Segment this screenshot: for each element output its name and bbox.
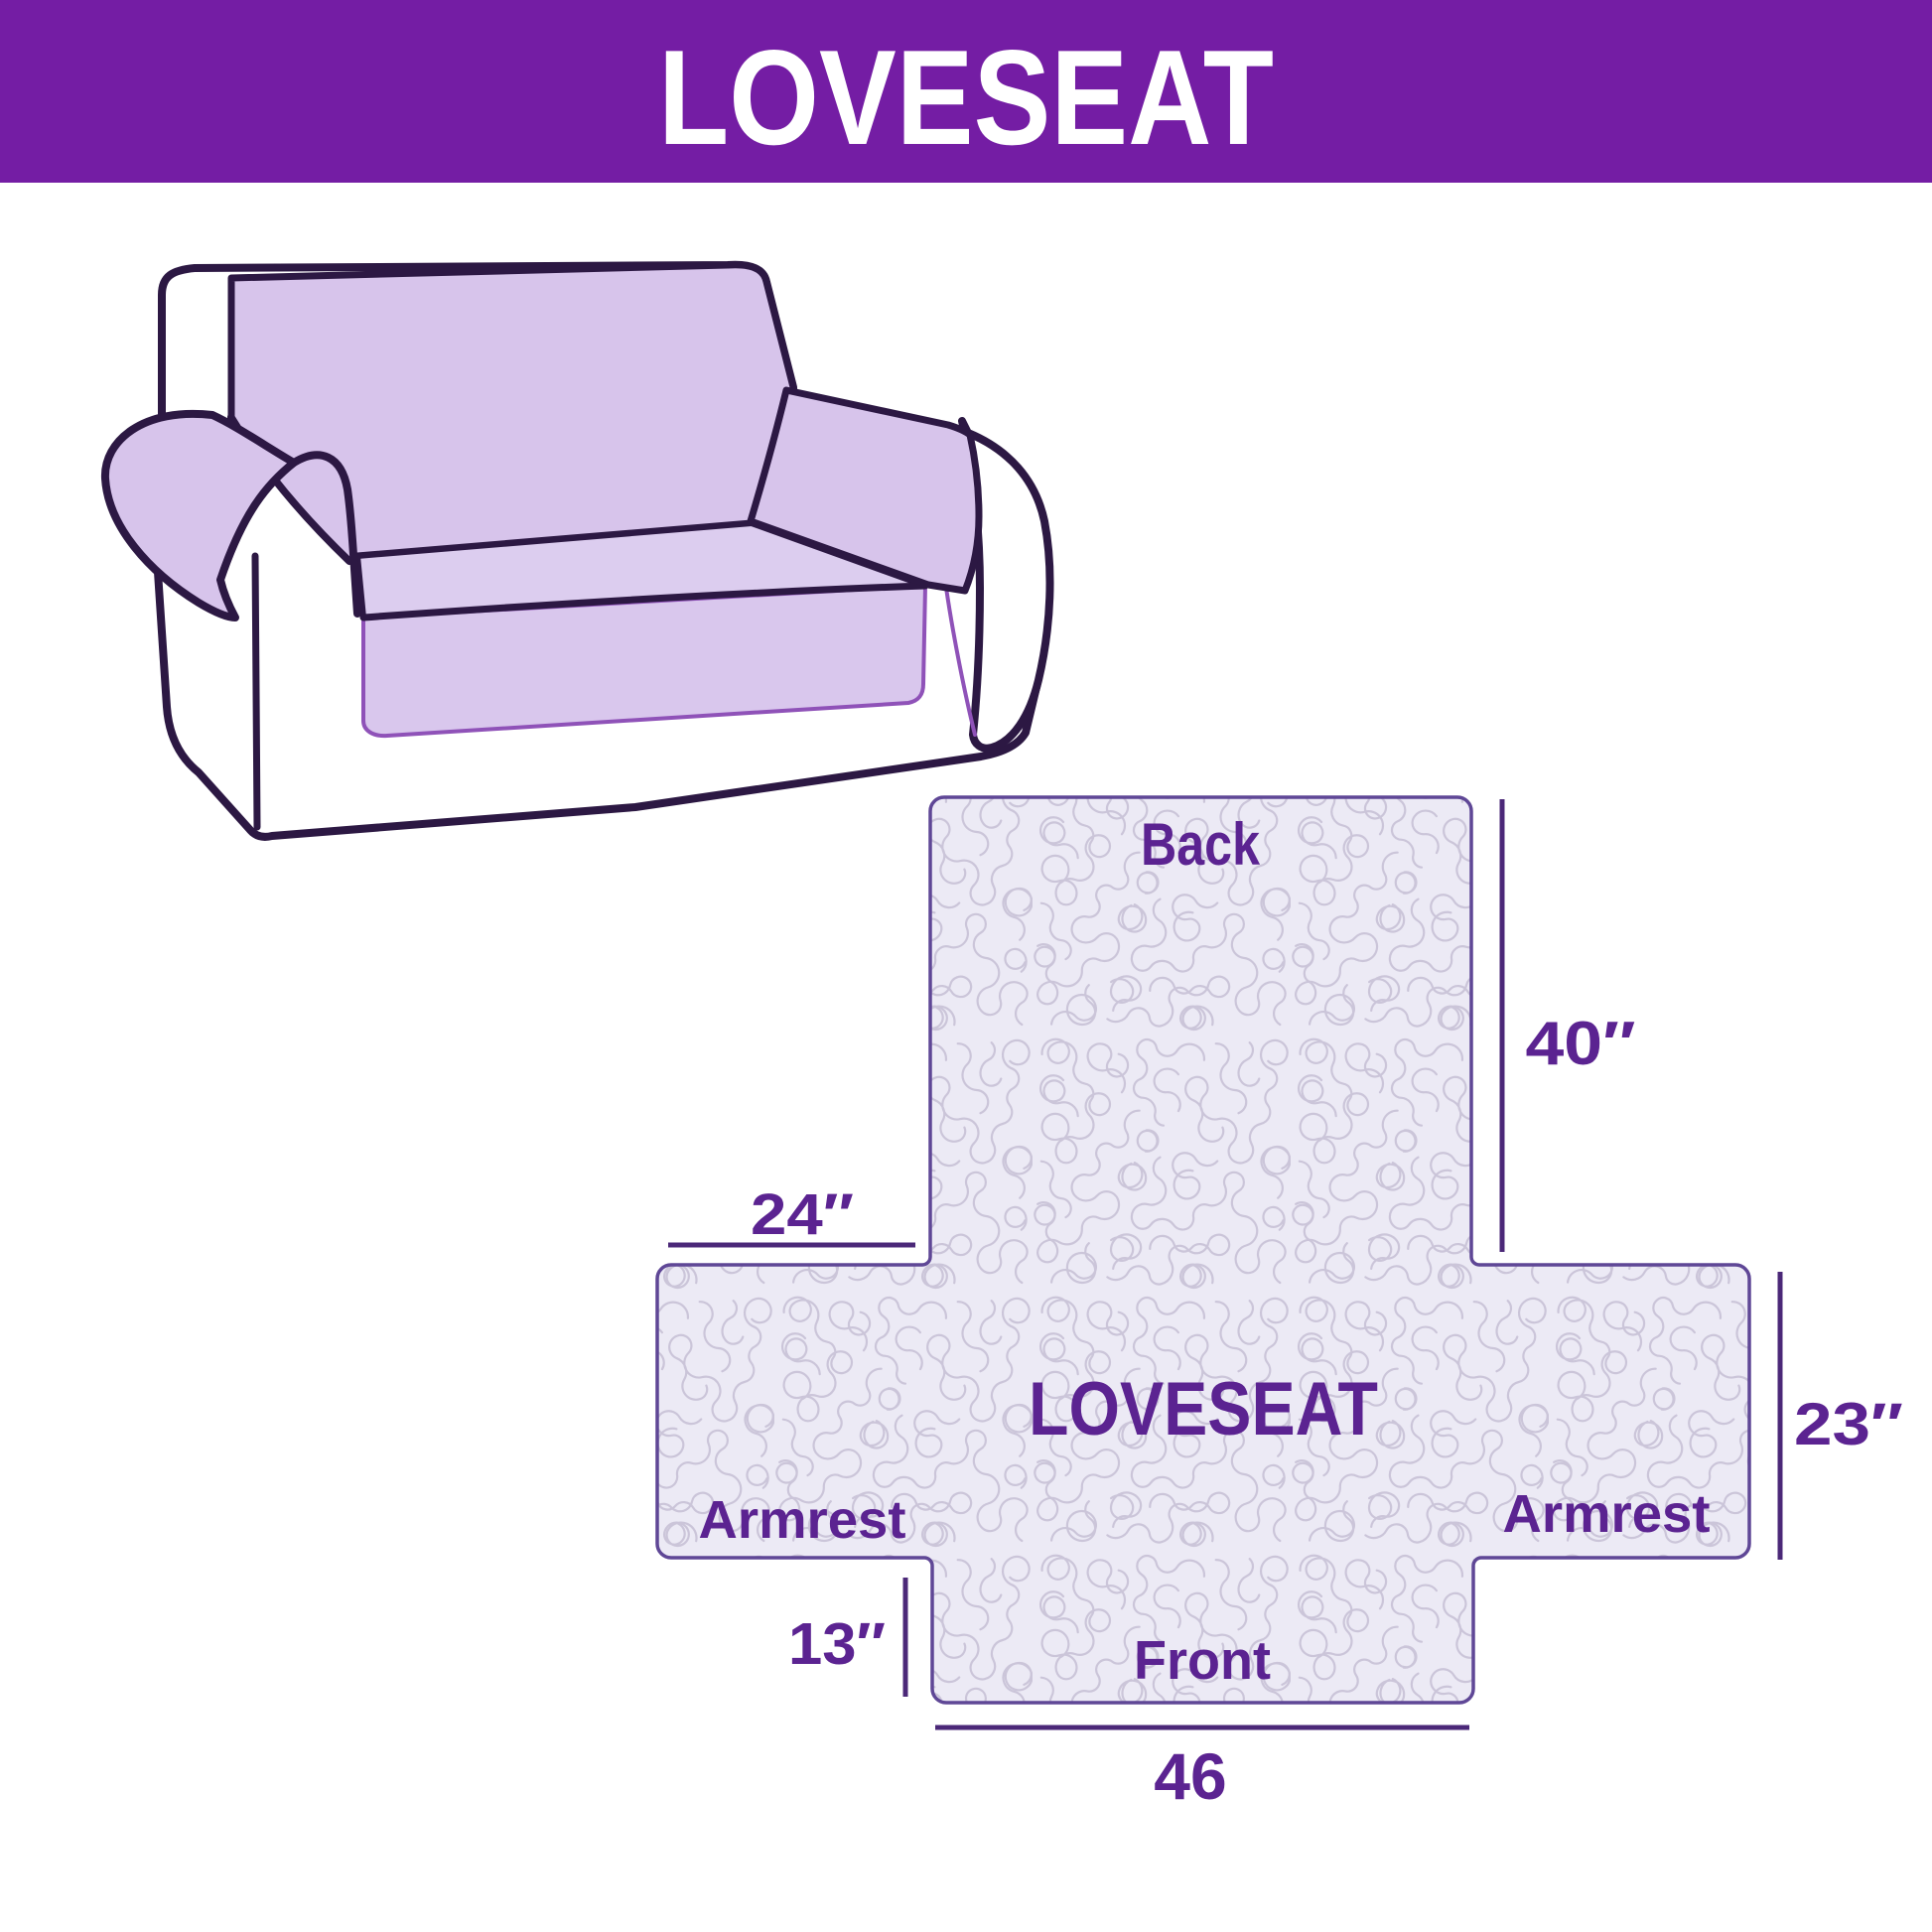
svg-text:LOVESEAT: LOVESEAT (658, 22, 1274, 173)
svg-text:24″: 24″ (751, 1182, 854, 1247)
svg-text:40″: 40″ (1526, 1010, 1636, 1078)
svg-text:Front: Front (1134, 1629, 1271, 1691)
svg-text:Armrest: Armrest (699, 1490, 906, 1550)
svg-text:Back: Back (1141, 811, 1261, 878)
svg-text:46: 46 (1154, 1739, 1226, 1813)
svg-text:Armrest: Armrest (1503, 1484, 1711, 1544)
svg-text:13″: 13″ (788, 1611, 886, 1677)
svg-text:LOVESEAT: LOVESEAT (1029, 1367, 1378, 1451)
svg-text:23″: 23″ (1794, 1391, 1903, 1457)
